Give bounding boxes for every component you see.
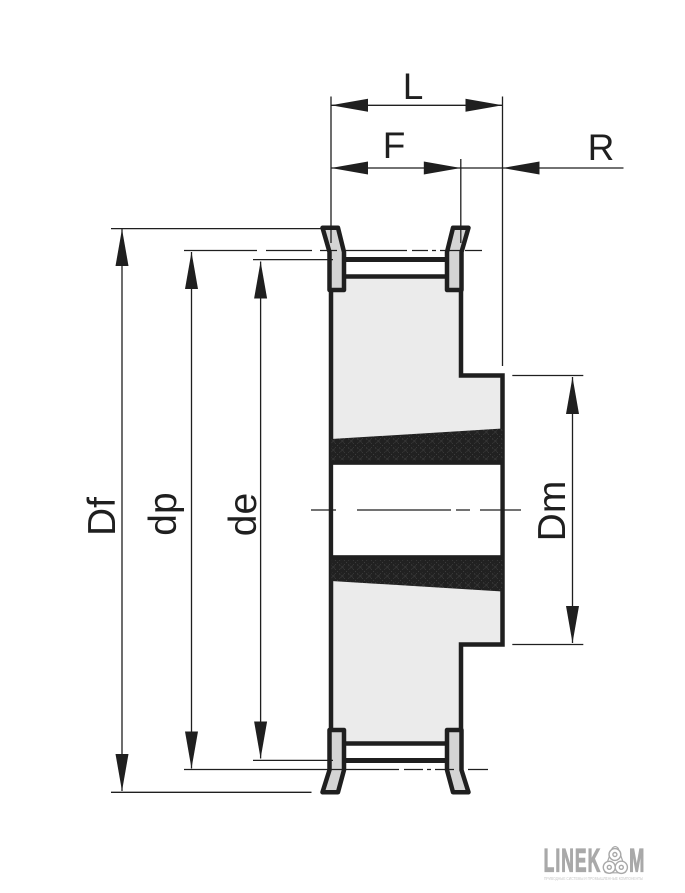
svg-text:M: M: [629, 842, 644, 879]
svg-text:R: R: [588, 127, 615, 168]
svg-text:LINEK: LINEK: [544, 842, 602, 879]
svg-text:de: de: [222, 493, 265, 536]
svg-text:ПРИВОДНЫЕ СИСТЕМЫ И ПРОМЫШЛЕНН: ПРИВОДНЫЕ СИСТЕМЫ И ПРОМЫШЛЕННЫЕ КОМПОНЕ…: [544, 876, 643, 881]
svg-text:Dm: Dm: [531, 481, 574, 542]
svg-text:Df: Df: [81, 497, 124, 536]
svg-text:F: F: [383, 125, 406, 166]
svg-text:L: L: [403, 66, 424, 107]
svg-text:dp: dp: [142, 492, 185, 535]
